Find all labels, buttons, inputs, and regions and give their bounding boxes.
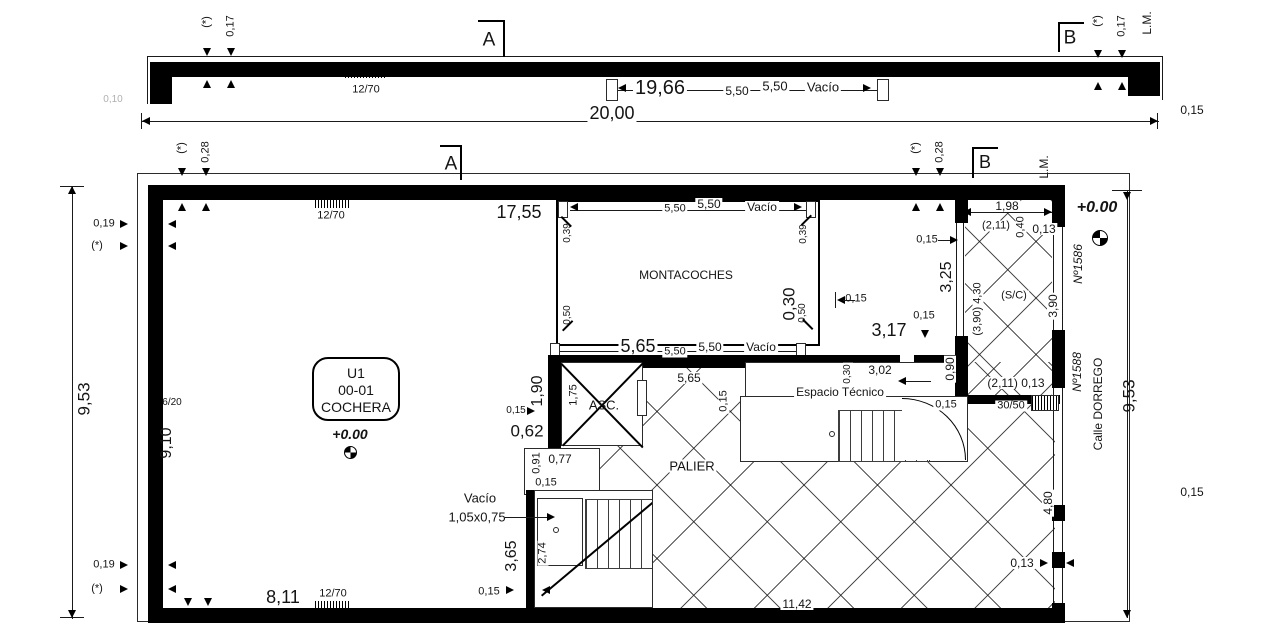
dim-550a-topstrip-label: 5,50 [723, 85, 750, 97]
faint-010-label: 0,10 [103, 95, 122, 105]
dim-019-bottom-label: 0,19 [93, 560, 114, 571]
dim-1755-label: 17,55 [496, 203, 541, 221]
dim-211-bottom-label: (2,11) 0,13 [985, 377, 1046, 389]
level-cochera-label: +0.00 [332, 427, 367, 441]
hatch-1270-bottom-label: 12/70 [319, 589, 347, 600]
dim-015-entry-top-label: 0,15 [916, 235, 937, 246]
vacio-void-label: Vacío [464, 492, 496, 505]
dim-015-void-label: 0,15 [478, 587, 499, 598]
labels-layer: (*)0,1712/70A19,665,505,50VacíoB(*)0,17L… [0, 0, 1280, 623]
unit-code-label: U1 [347, 366, 365, 380]
dim-013-bottom-label: 0,13 [1008, 557, 1035, 569]
hatch-1270-topstrip-label: 12/70 [352, 85, 380, 96]
dim-550b-mont-top-label: 5,50 [695, 198, 722, 210]
no-1588-label: Nº1588 [1071, 352, 1083, 392]
dim-365-label: 3,65 [504, 540, 520, 571]
marker-b-main-label: B [979, 153, 991, 171]
dim-039-right-label: 0,39 [799, 224, 809, 243]
dim-390-430-label: (3,90) 4,30 [973, 280, 984, 337]
lm-topstrip-label: L.M. [1141, 11, 1153, 34]
dim-030-esp-label: 0,30 [843, 362, 853, 385]
dim-050-left-label: 0,50 [563, 305, 573, 324]
espacio-tecnico-label: Espacio Técnico [794, 386, 886, 398]
dim-211-top-label: (2,11) [980, 221, 1012, 232]
dim-015-shaft-label: 0,15 [535, 478, 556, 489]
dim-198-label: 1,98 [993, 200, 1020, 212]
dim-013-top-label: 0,13 [1030, 223, 1057, 235]
no-1586-label: Nº1586 [1072, 244, 1084, 284]
dim-039-left-label: 0,39 [563, 223, 573, 242]
void-size-label: 1,05x0,75 [448, 511, 505, 524]
dim-480-label: 4,80 [1042, 489, 1054, 516]
dim-175-label: 1,75 [569, 384, 580, 405]
dim-019-top-label: 0,19 [93, 219, 114, 230]
dim-550b-topstrip-label: 5,50 [760, 80, 789, 93]
dim-2000-label: 20,00 [587, 104, 636, 122]
level-main-label: +0.00 [1077, 200, 1117, 216]
hatch-1270-main-label: 12/70 [317, 211, 345, 222]
montacoches-label: MONTACOCHES [639, 269, 733, 281]
dim-325-label: 3,25 [939, 261, 955, 292]
dim-953-left-label: 9,53 [76, 382, 93, 415]
dim-190-label: 1,90 [530, 375, 546, 406]
dim-015-right-label: 0,15 [1180, 486, 1203, 498]
dim-565-big-label: 5,65 [618, 337, 657, 355]
asc-label: ASC. [589, 399, 619, 412]
hatch-620-label: 6/20 [162, 398, 181, 408]
dim-091-label: 0,91 [532, 452, 543, 473]
vacio-topstrip-label: Vacío [805, 81, 841, 94]
hatch-3050-label: 30/50 [995, 401, 1027, 412]
dim-1966-label: 19,66 [633, 78, 687, 98]
dim-015-mont-label: 0,15 [845, 294, 866, 305]
star-top-left-label: (*) [202, 16, 213, 28]
dim-317-label: 3,17 [871, 321, 906, 339]
palier-label: PALIER [667, 460, 716, 473]
dim-015-entry-mid-label: 0,15 [911, 311, 936, 322]
dim-077-label: 0,77 [548, 453, 571, 465]
dim-550a-mont-bot-label: 5,50 [662, 347, 687, 358]
star-main-right-label: (*) [911, 142, 922, 154]
dim-062-label: 0,62 [510, 423, 543, 440]
unit-number-label: 00-01 [338, 383, 374, 397]
floor-plan-canvas: (*)0,1712/70A19,665,505,50VacíoB(*)0,17L… [0, 0, 1280, 623]
dim-015-left-asc-label: 0,15 [506, 406, 525, 416]
dim-028-right-label: 0,28 [935, 141, 946, 162]
dim-550a-mont-top-label: 5,50 [662, 204, 687, 215]
marker-a-main-label: A [445, 155, 458, 174]
dim-090-label: 0,90 [944, 355, 956, 382]
dim-565-palier-label: 5,65 [675, 372, 702, 384]
unit-name-label: COCHERA [321, 400, 391, 414]
dim-017-right-label: 0,17 [1117, 15, 1128, 36]
dim-015-asc-side-label: 0,15 [719, 388, 730, 413]
dim-910-label: 9,10 [159, 427, 175, 458]
dim-1142-label: 11,42 [780, 598, 813, 610]
dim-028-left-label: 0,28 [201, 141, 212, 162]
marker-a-topstrip-label: A [483, 31, 496, 50]
dim-015-esp-label: 0,15 [933, 400, 958, 411]
dim-811-label: 8,11 [266, 588, 300, 606]
dim-015-topright-label: 0,15 [1180, 104, 1203, 116]
dim-040-label: 0,40 [1016, 214, 1027, 239]
star-left-bottom-label: (*) [91, 584, 103, 595]
star-left-top-label: (*) [91, 241, 103, 252]
star-main-left-label: (*) [177, 142, 188, 154]
star-top-right-label: (*) [1093, 15, 1104, 27]
sc-label-label: (S/C) [999, 291, 1029, 302]
dim-030-big-label: 0,30 [781, 287, 798, 320]
vacio-mont-top-label: Vacío [745, 201, 779, 213]
dim-953-right-label: 9,53 [1121, 379, 1138, 412]
dim-390-right-label: 3,90 [1047, 292, 1059, 319]
dim-050-right-label: 0,50 [798, 303, 808, 322]
vacio-mont-bot-label: Vacío [744, 341, 778, 353]
dim-302-label: 3,02 [866, 364, 893, 376]
lm-main-label: L.M. [1038, 155, 1050, 178]
dim-274-label: 2,74 [538, 540, 549, 565]
dim-550b-mont-bot-label: 5,50 [696, 341, 723, 353]
marker-b-topstrip-label: B [1064, 29, 1077, 48]
dim-017-left-label: 0,17 [226, 15, 237, 36]
calle-dorrego-label: Calle DORREGO [1092, 358, 1104, 451]
